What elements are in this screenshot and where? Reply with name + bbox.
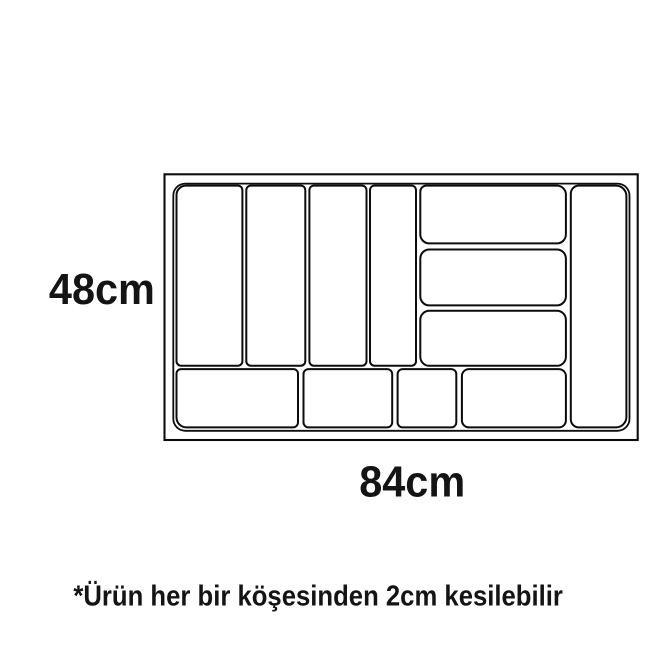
svg-text:48cm: 48cm <box>49 266 155 314</box>
svg-text:*Ürün her bir köşesinden 2cm k: *Ürün her bir köşesinden 2cm kesilebilir <box>73 579 563 612</box>
svg-text:84cm: 84cm <box>359 459 465 507</box>
